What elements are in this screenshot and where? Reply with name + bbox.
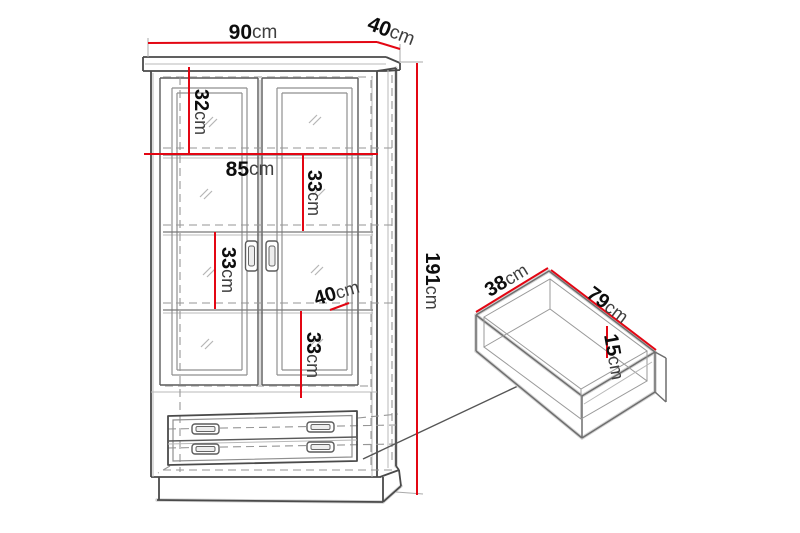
drawer-handle-top-right (307, 422, 334, 432)
label-shelf-gap-upper: 33cm (303, 170, 325, 216)
drawer-handle-bottom-left (192, 444, 219, 454)
furniture-dimension-diagram: 90cm 40cm 32cm 85cm 33cm 33cm 40cm 33cm … (0, 0, 800, 533)
drawer-handle-top-left (192, 424, 219, 434)
label-shelf-gap-middle: 33cm (217, 247, 239, 293)
dimension-labels: 90cm 40cm 32cm 85cm 33cm 33cm 40cm 33cm … (190, 12, 633, 382)
label-drawer-height: 15cm (599, 332, 629, 381)
label-shelf-gap-lower: 33cm (302, 332, 324, 378)
drawer-3d-view (476, 271, 666, 438)
drawer-unit (168, 411, 357, 465)
label-top-section-height: 32cm (190, 89, 212, 135)
cabinet-front-view (143, 57, 401, 502)
diagram-canvas: 90cm 40cm 32cm 85cm 33cm 33cm 40cm 33cm … (0, 0, 800, 533)
label-interior-width: 85cm (226, 158, 275, 181)
label-overall-height: 191cm (421, 252, 443, 309)
drawer-callout-connector-line (363, 386, 518, 459)
drawer-handle-bottom-right (307, 442, 334, 452)
left-door-handle (246, 241, 258, 271)
label-shelf-depth: 40cm (311, 276, 362, 311)
right-door-handle (266, 241, 278, 271)
cabinet-outline (143, 57, 401, 502)
label-overall-depth: 40cm (364, 12, 418, 51)
label-overall-width: 90cm (229, 21, 278, 44)
